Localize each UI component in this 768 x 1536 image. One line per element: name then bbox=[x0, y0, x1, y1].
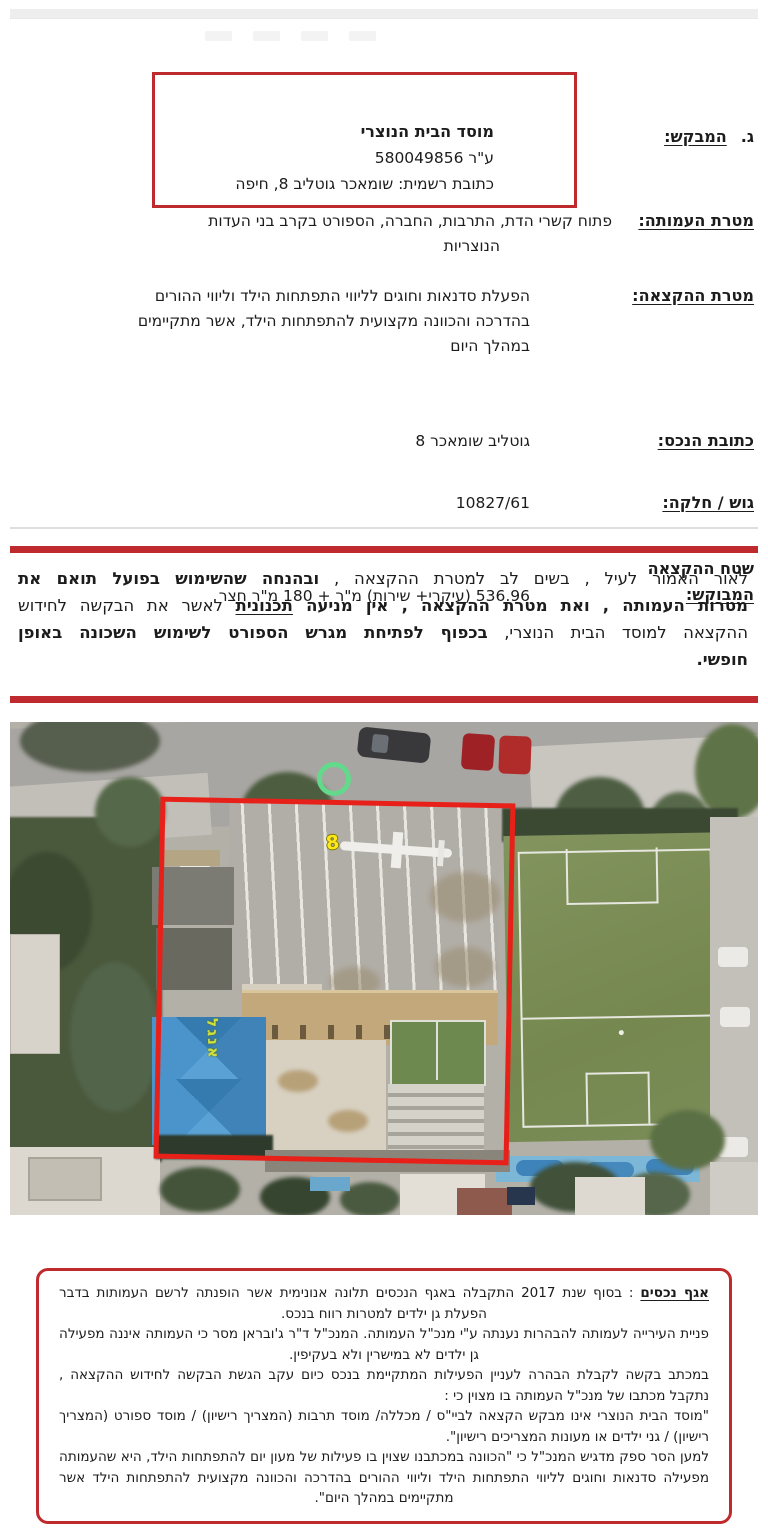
redacted-text-fragment bbox=[301, 31, 328, 41]
assets-paragraph: למען הסר ספק מדגיש המנכ"ל כי "הכוונה במכ… bbox=[59, 1447, 709, 1509]
assets-paragraph: במכתב בקשה לקבלת הבהרה לעניין הפעילות המ… bbox=[59, 1365, 709, 1406]
conclusion-line: חופשי. bbox=[18, 646, 748, 673]
field-label-association-purpose: מטרת העמותה: bbox=[638, 208, 754, 234]
parked-car bbox=[718, 947, 748, 967]
center-dot bbox=[619, 1030, 624, 1035]
applicant-highlight-box: מוסד הבית הנוצרי ע"ר 580049856 כתובת רשמ… bbox=[152, 72, 577, 208]
penalty-box bbox=[585, 1072, 650, 1125]
assets-paragraph: "מוסד הבית הנוצרי אינו מבקש הקצאה לביי"ס… bbox=[59, 1406, 709, 1447]
building-roof bbox=[710, 1162, 758, 1215]
redacted-text-fragment bbox=[205, 31, 232, 41]
field-label-property-address: כתובת הנכס: bbox=[658, 428, 754, 454]
red-car bbox=[461, 733, 495, 771]
conclusion-line: מטרות העמותה , ואת מטרת ההקצאה , אין מני… bbox=[18, 592, 748, 619]
tree-canopy bbox=[160, 1167, 240, 1212]
building-roof bbox=[457, 1188, 512, 1215]
redacted-text-fragment bbox=[253, 31, 280, 41]
block-parcel-value: 10827/61 bbox=[456, 491, 530, 516]
applicant-registration-number: ע"ר 580049856 bbox=[235, 145, 494, 171]
red-car bbox=[498, 735, 531, 774]
gray-divider bbox=[10, 527, 758, 529]
conclusion-line: לאור האמור לעיל , בשים לב למטרת ההקצאה ,… bbox=[18, 565, 748, 592]
scan-artifact-bar bbox=[10, 9, 758, 19]
field-label-allocation-purpose: מטרת ההקצאה: bbox=[632, 283, 754, 309]
aerial-photo: 8 אנגל bbox=[10, 722, 758, 1215]
parked-car bbox=[720, 1007, 750, 1027]
allocation-purpose-value: הפעלת סדנאות וחוגים לליווי התפתחות הילד … bbox=[138, 284, 530, 359]
property-address-value: גוטליב שומאכר 8 bbox=[415, 429, 530, 454]
applicant-name: מוסד הבית הנוצרי bbox=[235, 119, 494, 145]
conclusion-line: ההקצאה למוסד הבית הנוצרי, בכפוף לפתיחת מ… bbox=[18, 619, 748, 646]
scanned-document-page: מוסד הבית הנוצרי ע"ר 580049856 כתובת רשמ… bbox=[0, 0, 768, 1536]
assets-department-box: אגף נכסים : בסוף שנת 2017 התקבלה באגף הנ… bbox=[36, 1268, 732, 1524]
applicant-official-address: כתובת רשמית: שומאכר גוטליב 8, חיפה bbox=[235, 171, 494, 197]
tree-canopy bbox=[70, 962, 160, 1112]
building-roof bbox=[575, 1177, 645, 1215]
palm-tree bbox=[650, 1110, 725, 1170]
field-label-block-parcel: גוש / חלקה: bbox=[662, 490, 754, 516]
conclusion-paragraph: לאור האמור לעיל , בשים לב למטרת ההקצאה ,… bbox=[18, 565, 748, 673]
penalty-box bbox=[566, 847, 659, 905]
property-outline bbox=[154, 797, 516, 1166]
field-label-applicant: ג.המבקש: bbox=[664, 124, 754, 150]
assets-paragraph: אגף נכסים : בסוף שנת 2017 התקבלה באגף הנ… bbox=[59, 1283, 709, 1324]
palm-tree bbox=[95, 777, 165, 847]
association-purpose-value: פתוח קשרי הדת, התרבות, החברה, הספורט בקר… bbox=[208, 209, 612, 259]
assets-paragraph: פניית העירייה לעמותה להבהרות נענתה ע"י מ… bbox=[59, 1324, 709, 1365]
red-divider-bottom bbox=[10, 696, 758, 703]
building-roof bbox=[10, 934, 60, 1054]
red-divider-top bbox=[10, 546, 758, 553]
green-circle-marker bbox=[317, 762, 351, 796]
solar-panel bbox=[507, 1187, 535, 1205]
blue-tarp bbox=[310, 1177, 350, 1191]
building-roof bbox=[10, 1147, 160, 1215]
section-index: ג. bbox=[741, 124, 754, 150]
redacted-text-fragment bbox=[349, 31, 376, 41]
